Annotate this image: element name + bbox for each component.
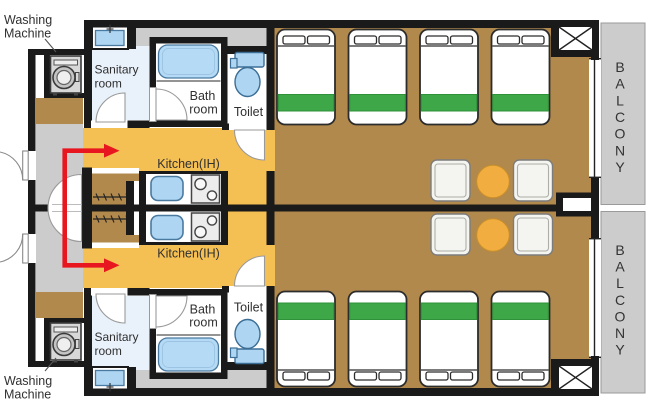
svg-text:O: O xyxy=(615,126,626,142)
svg-text:L: L xyxy=(616,92,624,108)
svg-text:Sanitary: Sanitary xyxy=(95,330,139,344)
svg-text:Kitchen(IH): Kitchen(IH) xyxy=(157,157,220,171)
svg-text:C: C xyxy=(615,109,625,125)
svg-text:Kitchen(IH): Kitchen(IH) xyxy=(157,247,220,261)
svg-text:A: A xyxy=(615,259,625,275)
svg-text:L: L xyxy=(616,275,624,291)
svg-text:Washing: Washing xyxy=(4,374,52,388)
svg-text:room: room xyxy=(95,344,122,358)
svg-text:Y: Y xyxy=(615,342,625,358)
svg-text:B: B xyxy=(615,59,624,75)
svg-text:Machine: Machine xyxy=(4,27,51,41)
svg-text:Bath: Bath xyxy=(190,89,216,103)
svg-text:Machine: Machine xyxy=(4,388,51,402)
svg-text:Washing: Washing xyxy=(4,13,52,27)
svg-text:C: C xyxy=(615,292,625,308)
svg-text:room: room xyxy=(189,316,217,330)
svg-text:O: O xyxy=(615,308,626,324)
svg-text:room: room xyxy=(95,77,122,91)
svg-text:Sanitary: Sanitary xyxy=(95,63,139,77)
svg-text:Bath: Bath xyxy=(190,303,216,317)
svg-text:Toilet: Toilet xyxy=(234,105,264,119)
svg-text:A: A xyxy=(615,76,625,92)
svg-text:room: room xyxy=(189,103,217,117)
svg-text:Toilet: Toilet xyxy=(234,301,264,315)
svg-text:N: N xyxy=(615,142,625,158)
svg-text:N: N xyxy=(615,325,625,341)
svg-text:Y: Y xyxy=(615,159,625,175)
svg-text:B: B xyxy=(615,242,624,258)
